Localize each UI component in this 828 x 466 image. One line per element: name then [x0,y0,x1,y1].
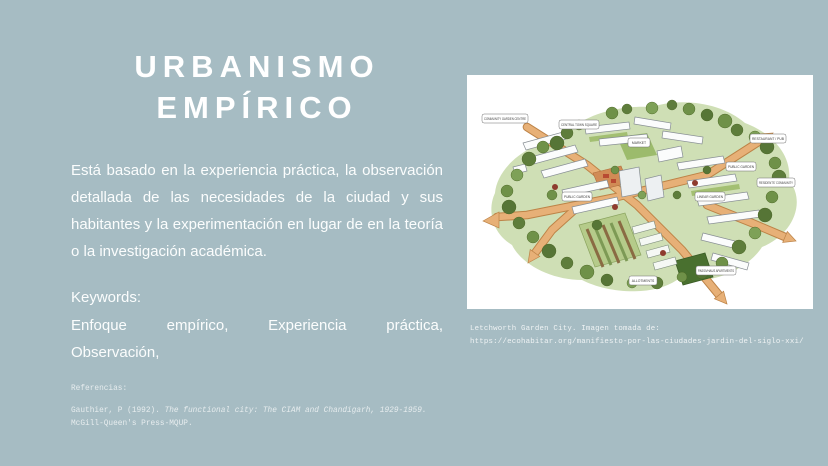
svg-text:PASSIVHAUS APARTMENTS: PASSIVHAUS APARTMENTS [698,269,735,273]
label-restaurant-pub: RESTAURANT / PUB [750,134,786,143]
garden-city-illustration: COMMUNITY GARDEN CENTRE CENTRAL TOWN SQU… [467,75,813,309]
svg-text:COMMUNITY GARDEN CENTRE: COMMUNITY GARDEN CENTRE [484,117,527,121]
svg-text:ALLOTMENTS: ALLOTMENTS [632,279,655,283]
label-passivhaus: PASSIVHAUS APARTMENTS [696,266,736,275]
keywords-line-1: Enfoque empírico, Experiencia práctica, [71,312,443,340]
keywords-block: Keywords: Enfoque empírico, Experiencia … [71,284,443,367]
garden-city-figure: COMMUNITY GARDEN CENTRE CENTRAL TOWN SQU… [467,75,813,309]
slide: URBANISMO EMPÍRICO Está basado en la exp… [0,0,828,466]
svg-text:MARKET: MARKET [632,141,646,145]
reference-author: Gauthier, P (1992). [71,407,165,415]
reference-publisher: McGill-Queen's Press-MQUP. [71,420,193,428]
reference-title: The functional city: The CIAM and Chandi… [165,407,427,415]
caption-url: https://ecohabitar.org/manifiesto-por-la… [470,336,804,349]
references-label: Referencias: [71,383,453,396]
label-market: MARKET [628,138,650,147]
keywords-label: Keywords: [71,284,443,312]
label-allotments: ALLOTMENTS [629,276,657,285]
svg-text:RESIDENTS' COMMUNITY: RESIDENTS' COMMUNITY [759,181,794,185]
label-community-garden-centre: COMMUNITY GARDEN CENTRE [482,114,528,123]
figure-caption: Letchworth Garden City. Imagen tomada de… [470,323,804,348]
svg-text:LINEAR GARDEN: LINEAR GARDEN [697,195,724,199]
svg-text:PUBLIC GARDEN: PUBLIC GARDEN [564,195,591,199]
label-linear-garden: LINEAR GARDEN [695,192,725,201]
label-public-garden-right: PUBLIC GARDEN [726,162,756,171]
references-block: Referencias: Gauthier, P (1992). The fun… [71,383,453,431]
reference-entry: Gauthier, P (1992). The functional city:… [71,405,453,431]
label-central-town-square: CENTRAL TOWN SQUARE [559,120,599,129]
caption-source-line: Letchworth Garden City. Imagen tomada de… [470,323,804,336]
label-public-garden-left: PUBLIC GARDEN [562,192,592,201]
keywords-line-2: Observación, [71,339,443,367]
body-paragraph: Está basado en la experiencia práctica, … [71,157,443,265]
svg-text:CENTRAL TOWN SQUARE: CENTRAL TOWN SQUARE [561,123,598,127]
svg-text:PUBLIC GARDEN: PUBLIC GARDEN [728,165,755,169]
page-title: URBANISMO EMPÍRICO [71,46,443,128]
label-residents-community: RESIDENTS' COMMUNITY [757,178,795,187]
svg-text:RESTAURANT / PUB: RESTAURANT / PUB [752,137,785,141]
road-arrow-left [483,212,499,228]
